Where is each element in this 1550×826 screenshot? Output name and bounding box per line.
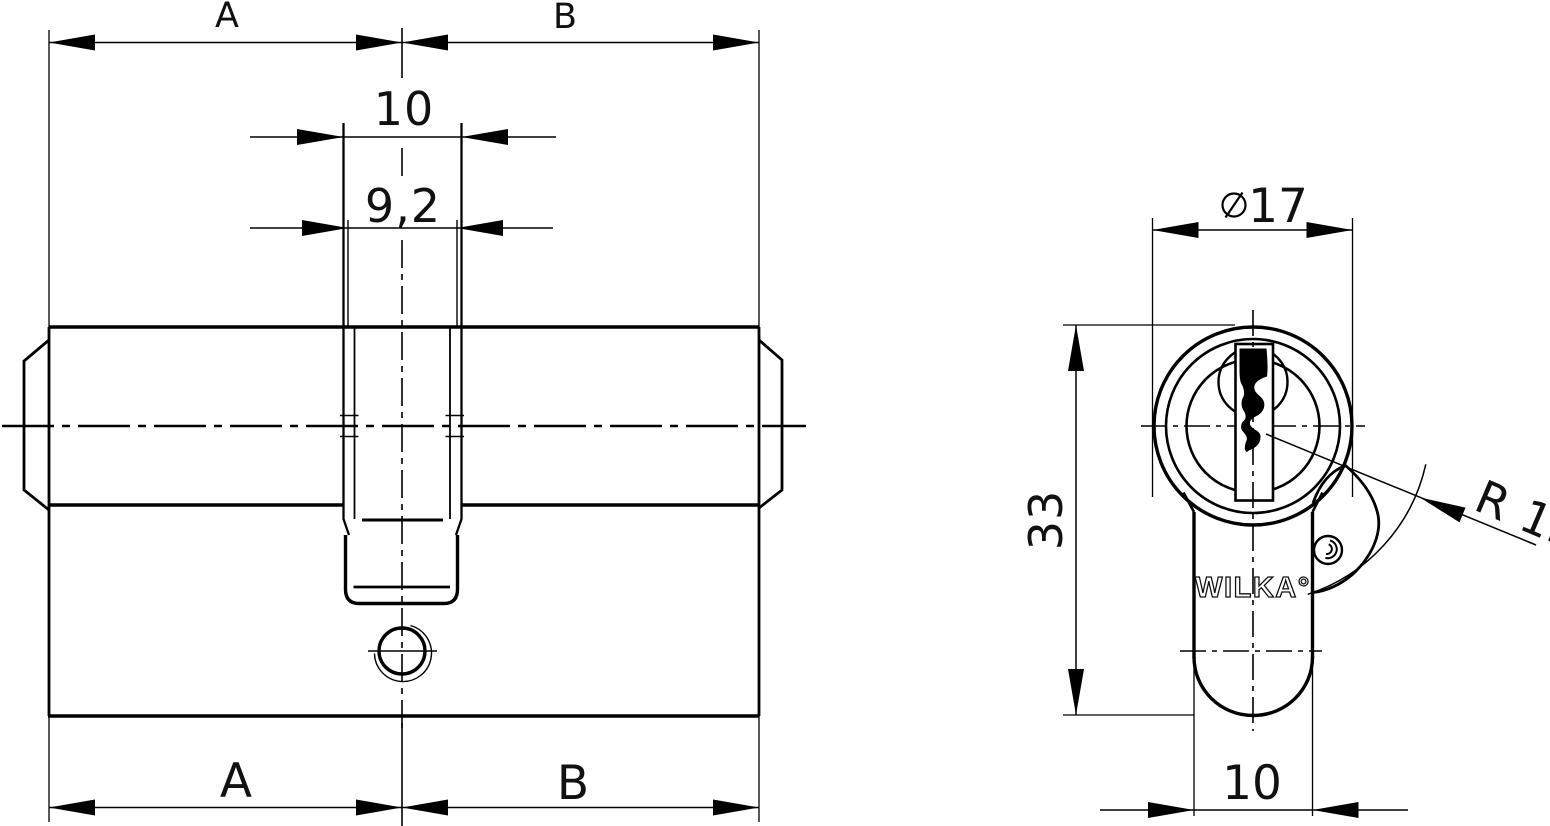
- technical-drawing-lock-cylinder: A B 10 9,2 A B WILKA°: [0, 0, 1550, 826]
- arrow-92-left: [302, 220, 348, 236]
- label-r15: R 15: [1468, 469, 1550, 561]
- arrow-bottom-center-left: [402, 800, 448, 816]
- diameter-symbol: [1223, 193, 1246, 218]
- label-d17: 17: [1248, 179, 1308, 234]
- side-view: A B 10 9,2 A B: [2, 0, 806, 826]
- label-33: 33: [1019, 490, 1073, 551]
- label-b-bottom: B: [557, 756, 589, 811]
- r15-arc: [1308, 464, 1426, 594]
- arrow-bottom-center-right: [356, 800, 402, 816]
- label-b-top: B: [553, 0, 577, 37]
- arrow-bottom-left: [49, 800, 95, 816]
- arrow-bottom-right: [713, 800, 759, 816]
- label-a-top: A: [215, 0, 239, 36]
- front-view: WILKA° 17 33 R 15 10: [1019, 179, 1550, 818]
- arrow-r15: [1420, 498, 1466, 523]
- arrow-33-bottom: [1068, 669, 1084, 715]
- right-end-chamfer-tip: [759, 340, 782, 508]
- label-10: 10: [374, 82, 435, 136]
- arrow-top-left: [49, 35, 95, 51]
- arrow-33-top: [1068, 325, 1084, 371]
- arrow-92-right: [457, 220, 503, 236]
- arrow-10b-left: [1148, 802, 1194, 818]
- arrow-10-right: [462, 129, 509, 145]
- brand-logo: WILKA°: [1195, 572, 1311, 604]
- arrow-top-center-left: [402, 35, 448, 51]
- cam-pin-arc-inner: [1326, 544, 1332, 554]
- label-92: 9,2: [365, 179, 441, 233]
- arrow-d17-right: [1307, 222, 1353, 238]
- label-a-bottom: A: [220, 754, 252, 809]
- arrow-top-center-right: [356, 35, 402, 51]
- label-10b: 10: [1222, 756, 1282, 811]
- arrow-10b-right: [1313, 802, 1359, 818]
- arrow-d17-left: [1153, 222, 1199, 238]
- arrow-top-right: [713, 35, 759, 51]
- cam-pin-circle: [1314, 536, 1342, 564]
- cam-outer-line-left: [344, 123, 350, 535]
- cam-outer-line-right: [456, 123, 462, 535]
- arrow-10-left: [297, 129, 344, 145]
